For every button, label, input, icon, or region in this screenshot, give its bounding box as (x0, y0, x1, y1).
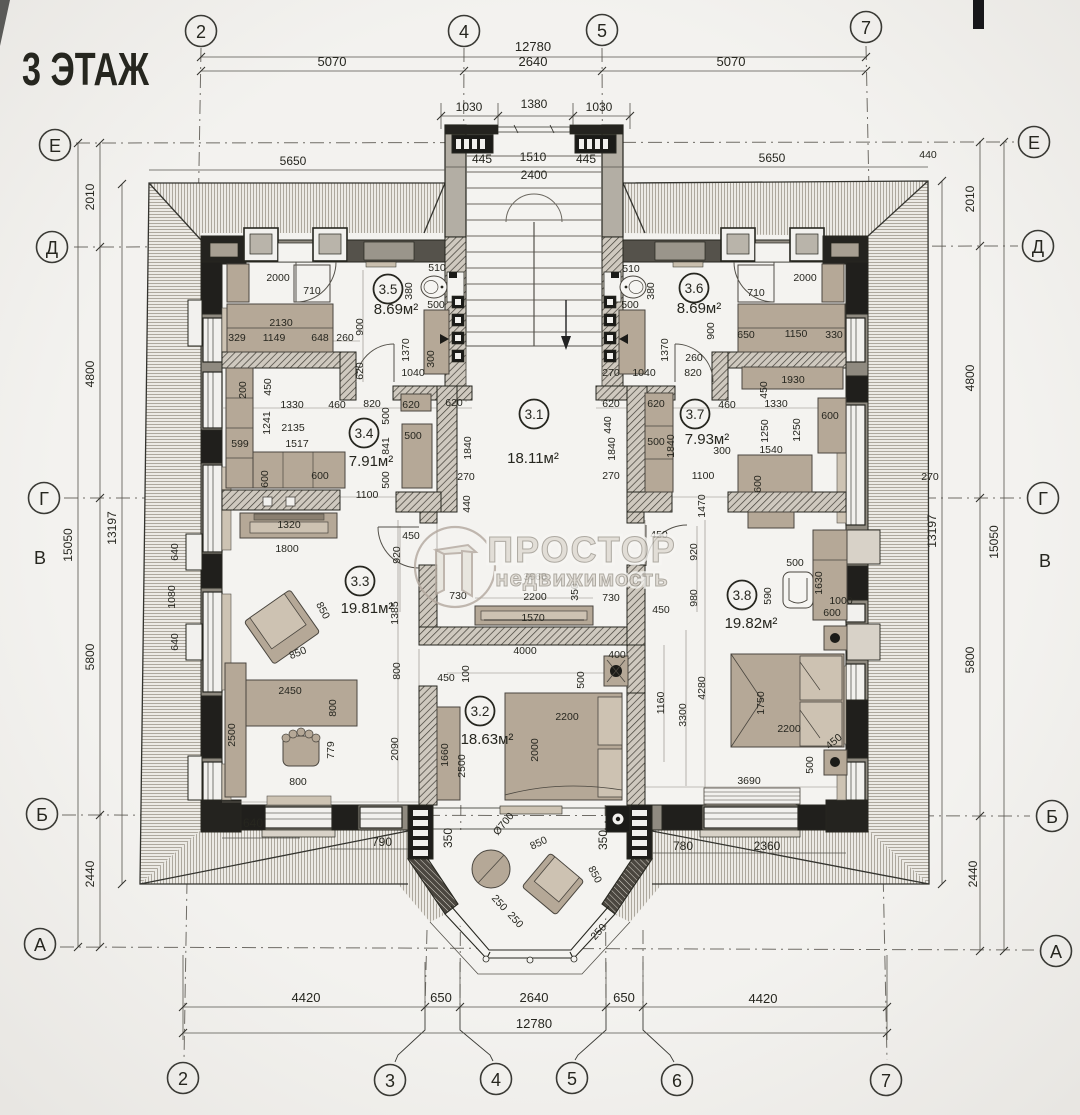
svg-text:450: 450 (652, 604, 670, 616)
svg-text:4000: 4000 (513, 645, 537, 657)
svg-text:1540: 1540 (759, 444, 783, 456)
svg-text:820: 820 (363, 398, 381, 410)
svg-text:12780: 12780 (516, 1016, 552, 1031)
svg-text:710: 710 (303, 285, 321, 297)
svg-text:5800: 5800 (83, 643, 97, 670)
svg-text:5650: 5650 (280, 154, 307, 168)
svg-text:1040: 1040 (632, 367, 656, 379)
svg-text:600: 600 (821, 410, 839, 422)
svg-text:450: 450 (758, 381, 770, 399)
svg-text:1660: 1660 (439, 743, 451, 767)
svg-text:Д: Д (46, 238, 58, 258)
svg-text:7: 7 (881, 1071, 891, 1091)
svg-text:2: 2 (178, 1069, 188, 1089)
svg-text:В: В (34, 548, 46, 568)
svg-text:4800: 4800 (83, 360, 97, 387)
svg-text:730: 730 (602, 592, 620, 604)
svg-text:Г: Г (39, 489, 49, 509)
svg-text:3.4: 3.4 (355, 426, 374, 441)
svg-text:1570: 1570 (521, 612, 545, 624)
svg-text:510: 510 (428, 262, 446, 274)
svg-text:1840: 1840 (462, 436, 474, 460)
svg-text:1030: 1030 (586, 100, 613, 114)
svg-text:260: 260 (685, 352, 703, 364)
svg-text:329: 329 (228, 332, 246, 344)
svg-text:1320: 1320 (277, 519, 301, 531)
svg-text:2360: 2360 (754, 839, 781, 853)
svg-text:В: В (1039, 551, 1051, 571)
svg-text:2000: 2000 (529, 738, 541, 762)
svg-text:Г: Г (1038, 489, 1048, 509)
svg-text:Б: Б (36, 805, 48, 825)
svg-text:1517: 1517 (285, 438, 309, 450)
svg-text:19.82м²: 19.82м² (725, 615, 778, 632)
svg-text:недвижимость: недвижимость (495, 566, 668, 591)
svg-text:500: 500 (575, 671, 587, 689)
svg-text:15050: 15050 (61, 528, 75, 562)
svg-text:450: 450 (402, 530, 420, 542)
svg-text:1470: 1470 (696, 494, 708, 518)
svg-text:1510: 1510 (520, 150, 547, 164)
svg-text:841: 841 (380, 437, 392, 455)
svg-text:2000: 2000 (266, 272, 290, 284)
svg-text:980: 980 (688, 589, 700, 607)
svg-text:13197: 13197 (105, 511, 119, 545)
svg-text:15050: 15050 (987, 525, 1001, 559)
svg-text:440: 440 (602, 416, 614, 434)
svg-text:1370: 1370 (659, 338, 671, 362)
svg-text:3.5: 3.5 (379, 282, 398, 297)
svg-text:270: 270 (602, 367, 620, 379)
svg-text:2135: 2135 (281, 422, 305, 434)
svg-text:510: 510 (622, 263, 640, 275)
svg-text:1149: 1149 (263, 332, 286, 344)
svg-text:2400: 2400 (521, 168, 548, 182)
svg-text:3.1: 3.1 (525, 407, 544, 422)
svg-text:1030: 1030 (456, 100, 483, 114)
svg-text:300: 300 (425, 350, 437, 368)
svg-text:500: 500 (621, 299, 639, 311)
svg-text:8.69м²: 8.69м² (374, 301, 419, 318)
svg-text:260: 260 (336, 332, 354, 344)
svg-text:270: 270 (457, 471, 475, 483)
svg-text:1330: 1330 (764, 398, 788, 410)
svg-text:2010: 2010 (963, 185, 977, 212)
svg-text:1080: 1080 (166, 585, 178, 609)
svg-text:800: 800 (391, 662, 403, 680)
svg-text:300: 300 (713, 445, 731, 457)
svg-text:5800: 5800 (963, 646, 977, 673)
svg-text:779: 779 (325, 741, 337, 759)
svg-text:790: 790 (372, 835, 392, 849)
svg-text:2010: 2010 (83, 183, 97, 210)
svg-text:500: 500 (804, 756, 816, 774)
svg-text:920: 920 (688, 543, 700, 561)
svg-text:640: 640 (169, 633, 181, 651)
svg-text:1840: 1840 (665, 434, 677, 458)
svg-text:А: А (34, 935, 46, 955)
svg-text:2200: 2200 (555, 711, 579, 723)
svg-text:200: 200 (237, 381, 249, 399)
svg-text:1750: 1750 (755, 691, 767, 715)
svg-text:5: 5 (567, 1069, 577, 1089)
svg-text:3.8: 3.8 (733, 588, 752, 603)
svg-text:380: 380 (403, 282, 415, 300)
svg-text:590: 590 (762, 587, 774, 605)
svg-text:2500: 2500 (456, 754, 468, 778)
svg-text:2130: 2130 (269, 317, 293, 329)
svg-text:ПРОСТОР: ПРОСТОР (487, 529, 677, 570)
svg-text:800: 800 (289, 776, 307, 788)
svg-text:13197: 13197 (925, 514, 939, 548)
svg-text:500: 500 (786, 557, 804, 569)
svg-text:599: 599 (231, 438, 249, 450)
svg-text:440: 440 (919, 149, 937, 161)
svg-text:1100: 1100 (692, 470, 715, 482)
svg-text:3690: 3690 (737, 775, 761, 787)
svg-text:Е: Е (49, 136, 61, 156)
svg-text:2440: 2440 (83, 860, 97, 887)
svg-text:2640: 2640 (519, 54, 548, 69)
svg-text:460: 460 (328, 399, 346, 411)
svg-text:900: 900 (705, 322, 717, 340)
svg-text:640: 640 (243, 816, 263, 830)
svg-text:3.2: 3.2 (471, 704, 490, 719)
svg-text:2440: 2440 (966, 860, 980, 887)
svg-text:620: 620 (445, 397, 463, 409)
svg-text:500: 500 (427, 299, 445, 311)
svg-text:4420: 4420 (749, 991, 778, 1006)
svg-text:920: 920 (391, 546, 403, 564)
svg-text:445: 445 (472, 152, 492, 166)
svg-text:2: 2 (196, 22, 206, 42)
svg-text:620: 620 (647, 398, 665, 410)
svg-text:12780: 12780 (515, 39, 551, 54)
svg-text:450: 450 (437, 672, 455, 684)
svg-text:1840: 1840 (606, 437, 618, 461)
svg-text:Б: Б (1046, 807, 1058, 827)
svg-text:6: 6 (672, 1071, 682, 1091)
svg-text:1370: 1370 (400, 338, 412, 362)
svg-text:3: 3 (385, 1071, 395, 1091)
svg-text:18.63м²: 18.63м² (461, 731, 514, 748)
svg-text:800: 800 (327, 699, 339, 717)
svg-text:3.7: 3.7 (686, 407, 705, 422)
svg-text:1100: 1100 (356, 489, 379, 501)
svg-text:1385: 1385 (389, 601, 401, 625)
svg-text:1241: 1241 (261, 411, 273, 435)
svg-text:1250: 1250 (759, 419, 771, 443)
svg-text:4420: 4420 (292, 990, 321, 1005)
svg-text:5070: 5070 (318, 54, 347, 69)
svg-text:640: 640 (169, 543, 181, 561)
svg-text:600: 600 (752, 475, 764, 493)
svg-text:5650: 5650 (759, 151, 786, 165)
svg-text:19.81м²: 19.81м² (341, 600, 394, 617)
svg-text:620: 620 (402, 399, 420, 411)
svg-text:2500: 2500 (226, 723, 238, 747)
svg-text:2640: 2640 (520, 990, 549, 1005)
svg-text:3.6: 3.6 (685, 281, 704, 296)
svg-text:3 ЭТАЖ: 3 ЭТАЖ (22, 43, 149, 95)
svg-text:1380: 1380 (521, 97, 548, 111)
svg-text:1930: 1930 (781, 374, 805, 386)
svg-text:620: 620 (354, 362, 366, 380)
svg-text:380: 380 (645, 282, 657, 300)
svg-text:500: 500 (380, 471, 392, 489)
svg-text:8.69м²: 8.69м² (677, 300, 722, 317)
svg-text:500: 500 (647, 436, 665, 448)
svg-text:500: 500 (380, 407, 392, 425)
svg-text:270: 270 (921, 471, 939, 483)
svg-text:780: 780 (673, 839, 693, 853)
svg-text:4800: 4800 (963, 364, 977, 391)
svg-text:1330: 1330 (280, 399, 304, 411)
svg-text:2090: 2090 (389, 737, 401, 761)
svg-text:1160: 1160 (655, 692, 667, 715)
svg-text:820: 820 (684, 367, 702, 379)
svg-text:650: 650 (613, 990, 635, 1005)
svg-text:1250: 1250 (791, 418, 803, 442)
svg-text:600: 600 (823, 607, 841, 619)
svg-text:Д: Д (1032, 237, 1044, 257)
svg-text:400: 400 (608, 649, 626, 661)
svg-text:3300: 3300 (677, 703, 689, 727)
svg-text:650: 650 (737, 329, 755, 341)
svg-text:3.3: 3.3 (351, 574, 370, 589)
svg-text:650: 650 (430, 990, 452, 1005)
svg-text:1040: 1040 (401, 367, 425, 379)
svg-text:1630: 1630 (813, 571, 825, 595)
svg-text:2000: 2000 (793, 272, 817, 284)
svg-text:100: 100 (460, 665, 472, 683)
svg-text:1800: 1800 (275, 543, 299, 555)
svg-text:1150: 1150 (785, 328, 808, 340)
svg-text:710: 710 (747, 287, 765, 299)
svg-text:450: 450 (262, 378, 274, 396)
svg-text:445: 445 (576, 152, 596, 166)
svg-text:2450: 2450 (278, 685, 302, 697)
svg-text:440: 440 (461, 495, 473, 513)
svg-text:4280: 4280 (696, 676, 708, 700)
svg-text:Е: Е (1028, 133, 1040, 153)
svg-text:18.11м²: 18.11м² (507, 450, 559, 467)
svg-text:5070: 5070 (717, 54, 746, 69)
svg-text:2200: 2200 (523, 591, 547, 603)
svg-text:2200: 2200 (777, 723, 801, 735)
svg-text:600: 600 (259, 470, 271, 488)
svg-text:А: А (1050, 942, 1062, 962)
svg-text:1000: 1000 (829, 595, 853, 607)
svg-text:7: 7 (861, 18, 871, 38)
svg-text:600: 600 (311, 470, 329, 482)
svg-text:5: 5 (597, 21, 607, 41)
svg-text:4: 4 (459, 22, 469, 42)
svg-text:648: 648 (311, 332, 329, 344)
svg-text:460: 460 (718, 399, 736, 411)
svg-text:500: 500 (404, 430, 422, 442)
svg-text:330: 330 (825, 329, 843, 341)
svg-text:620: 620 (602, 398, 620, 410)
svg-text:270: 270 (602, 470, 620, 482)
svg-text:900: 900 (354, 318, 366, 336)
svg-text:350: 350 (441, 828, 455, 848)
svg-text:4: 4 (491, 1070, 501, 1090)
svg-text:350: 350 (596, 830, 610, 850)
